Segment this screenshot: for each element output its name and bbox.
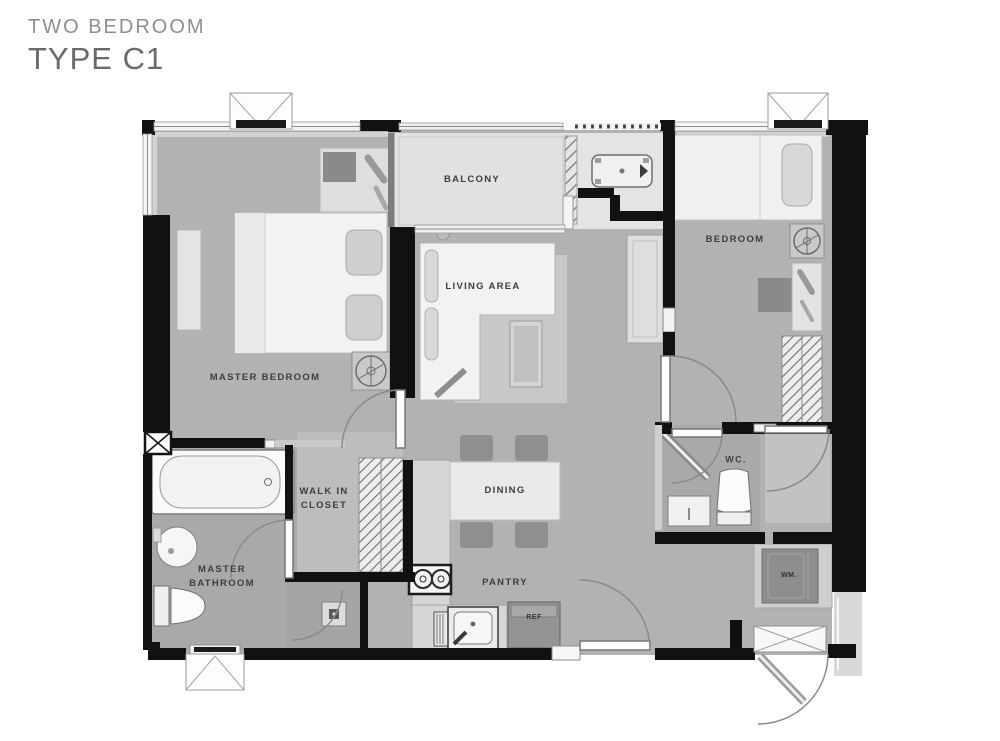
- wall-nook: [618, 211, 663, 221]
- shower-drain-icon: [322, 602, 346, 626]
- floor-plan: MASTER BEDROOM BALCONY LIVING AREA BEDRO…: [140, 88, 870, 728]
- wall-wm-top: [773, 532, 832, 544]
- mb-wall-trim-top: [152, 132, 390, 137]
- bay-window-marker-bottom: [186, 645, 244, 690]
- plan-title: TYPE C1: [28, 41, 206, 77]
- pillow-icon: [346, 230, 382, 275]
- wc-sink-icon: [668, 496, 710, 526]
- wall-left: [143, 454, 152, 650]
- linen-closet-floor: [765, 428, 830, 523]
- wall-corner-br: [828, 644, 856, 658]
- master-bed-icon: [235, 213, 387, 353]
- wall-jamb: [265, 440, 275, 448]
- wall-wc-bottom: [655, 532, 765, 544]
- wall-br2-left: [663, 130, 675, 308]
- tv-icon: [323, 152, 356, 182]
- bay-window-marker-top-left: [230, 93, 292, 129]
- wall-mb-living: [390, 227, 415, 398]
- balcony-sliding-door: [415, 225, 565, 233]
- wall-bottom: [150, 648, 186, 660]
- ceiling-fan-icon: [790, 224, 824, 258]
- desk-icon: [792, 263, 822, 331]
- title-block: TWO BEDROOM TYPE C1: [28, 16, 206, 77]
- dining-chair-icon: [460, 522, 493, 548]
- plan-subtitle: TWO BEDROOM: [28, 16, 206, 39]
- mb-wall-trim-left: [152, 132, 157, 218]
- dining-table-icon: [450, 462, 560, 520]
- wall-corner-tl: [142, 120, 155, 135]
- pillow-icon: [346, 295, 382, 340]
- wall-shower-right: [360, 578, 368, 650]
- kitchen-sink-icon: [434, 607, 498, 649]
- dining-chair-icon: [515, 435, 548, 461]
- cooktop-icon: [409, 565, 451, 594]
- walk-in-closet-furniture: [359, 458, 403, 572]
- entry-threshold: [552, 646, 580, 660]
- wall-closet-bottom: [285, 572, 415, 582]
- wall-bath-closet: [285, 445, 293, 520]
- wall-stub: [730, 620, 742, 648]
- sofa-cushion: [425, 250, 438, 302]
- wall-nook: [578, 188, 614, 198]
- floor-plan-page: TWO BEDROOM TYPE C1: [0, 0, 1000, 741]
- bathtub-icon: [152, 450, 294, 514]
- wall-br2-left: [663, 332, 675, 356]
- ac-unit-icon: [592, 155, 652, 187]
- ledge-railing-dashed: [573, 123, 661, 130]
- column-x-marker: [145, 432, 171, 454]
- wall-post: [660, 120, 675, 131]
- window-left-master: [143, 134, 152, 215]
- wall-mb-balcony: [388, 133, 394, 227]
- tv-icon: [758, 278, 792, 312]
- wall-left-thick: [143, 215, 170, 432]
- washing-machine-icon: [754, 544, 832, 608]
- balcony-railing: [399, 123, 563, 130]
- sofa-cushion: [425, 308, 438, 360]
- balcony-floor: [395, 133, 567, 229]
- toilet-icon: [717, 469, 751, 525]
- wall-closet-kitchen: [403, 460, 413, 574]
- balcony-rail-end: [563, 196, 573, 229]
- dining-chair-icon: [460, 435, 493, 461]
- service-door: [758, 654, 828, 724]
- bench-icon: [177, 230, 201, 330]
- wall-bottom: [244, 648, 554, 660]
- wall-wc-left: [655, 425, 662, 530]
- wall-right-thick: [832, 122, 866, 592]
- service-balcony-x: [754, 626, 826, 652]
- coffee-table-icon: [510, 321, 542, 387]
- ceiling-fan-icon: [352, 352, 390, 390]
- bay-window-marker-top-right: [768, 93, 828, 129]
- wall-jamb: [663, 308, 675, 332]
- dining-chair-icon: [515, 522, 548, 548]
- pillow-icon: [782, 144, 812, 206]
- wall-bottom: [655, 648, 755, 660]
- hallway-cabinet-icon: [627, 235, 663, 343]
- refrigerator-icon: [508, 602, 560, 648]
- floor-plan-drawing: [140, 88, 870, 728]
- bed-icon: [670, 135, 822, 220]
- nightstand-icon: [320, 148, 390, 212]
